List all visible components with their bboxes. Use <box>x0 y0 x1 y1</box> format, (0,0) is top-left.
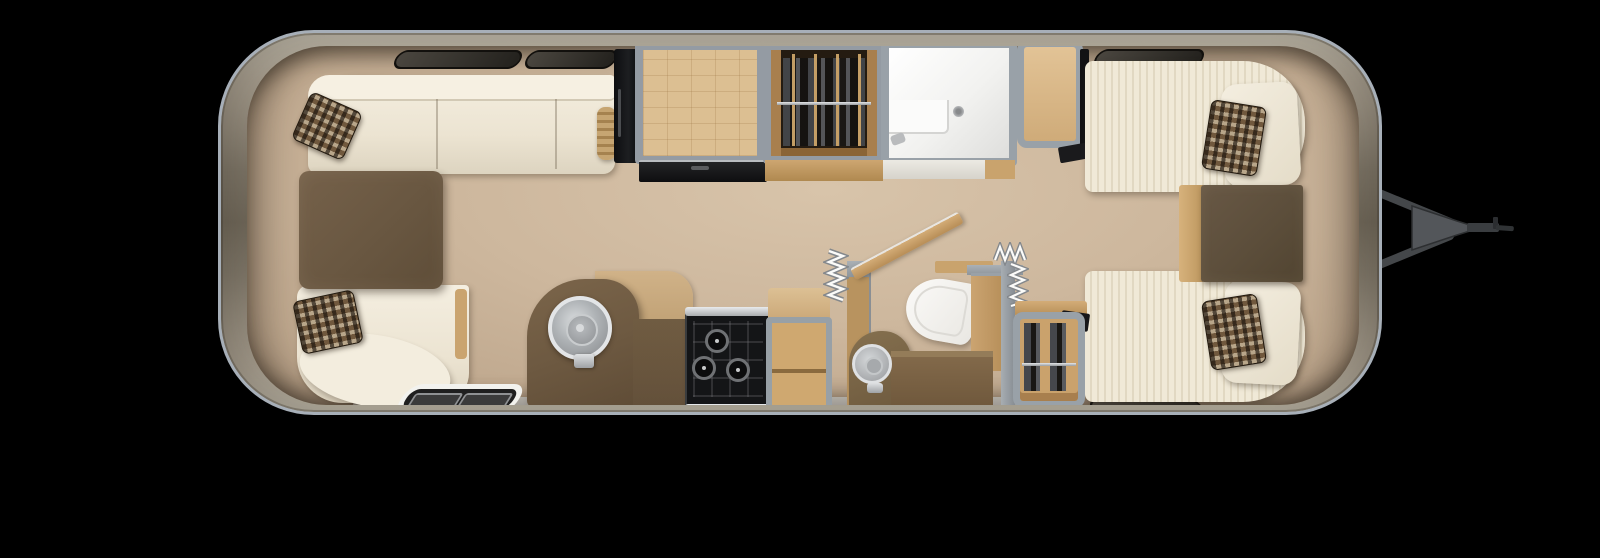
galley-cabinet <box>635 46 765 164</box>
step-slot <box>456 393 514 405</box>
closet-rod <box>777 102 871 105</box>
vanity-faucet <box>867 383 883 393</box>
nightstand <box>1201 185 1303 282</box>
floor-plan-scene <box>0 0 1600 558</box>
cooktop-trim <box>685 307 771 316</box>
kitchen-faucet <box>574 354 594 368</box>
open-shelf-cabinet <box>766 317 832 405</box>
hanging-clothes <box>1024 323 1068 391</box>
lounge-table <box>299 171 443 289</box>
burner <box>705 329 729 353</box>
kitchen-sink <box>548 296 612 360</box>
tv-credenza <box>639 160 767 182</box>
accent-pillow <box>1201 99 1267 177</box>
top-wall-window-2 <box>522 50 621 69</box>
top-wall-window-1 <box>391 50 526 69</box>
wood-hangers <box>783 54 865 146</box>
accent-pillow <box>1201 293 1267 371</box>
vanity-counter <box>891 351 993 405</box>
trailer-shell <box>218 30 1382 415</box>
vanity-sink <box>852 344 892 384</box>
interior-floor <box>247 46 1359 405</box>
shower-stall <box>881 46 1017 166</box>
entry-step-mat <box>392 384 529 405</box>
kitchen-counter-right <box>633 319 693 405</box>
burner <box>692 356 716 380</box>
shower-valve <box>890 132 907 146</box>
burner <box>726 358 750 382</box>
toilet <box>901 273 981 346</box>
step-slot <box>406 393 464 405</box>
shower-face <box>883 160 1015 179</box>
wardrobe-closet <box>763 46 885 164</box>
shower-ledge <box>889 100 949 134</box>
accordion-door-left <box>823 248 849 304</box>
closet-face <box>765 160 883 181</box>
nightstand-edge <box>1179 185 1203 282</box>
shadow-wedge <box>1058 143 1088 164</box>
closet-rod <box>1022 363 1076 366</box>
foot-wardrobe <box>1013 312 1085 405</box>
cooktop-trim <box>685 404 771 405</box>
sofa-seam <box>555 99 557 169</box>
shower-drain <box>953 106 964 117</box>
cabinet-top <box>768 288 830 320</box>
cooktop <box>687 311 769 405</box>
sofa-seam <box>436 99 438 169</box>
bathroom-cabinet <box>1017 46 1083 148</box>
